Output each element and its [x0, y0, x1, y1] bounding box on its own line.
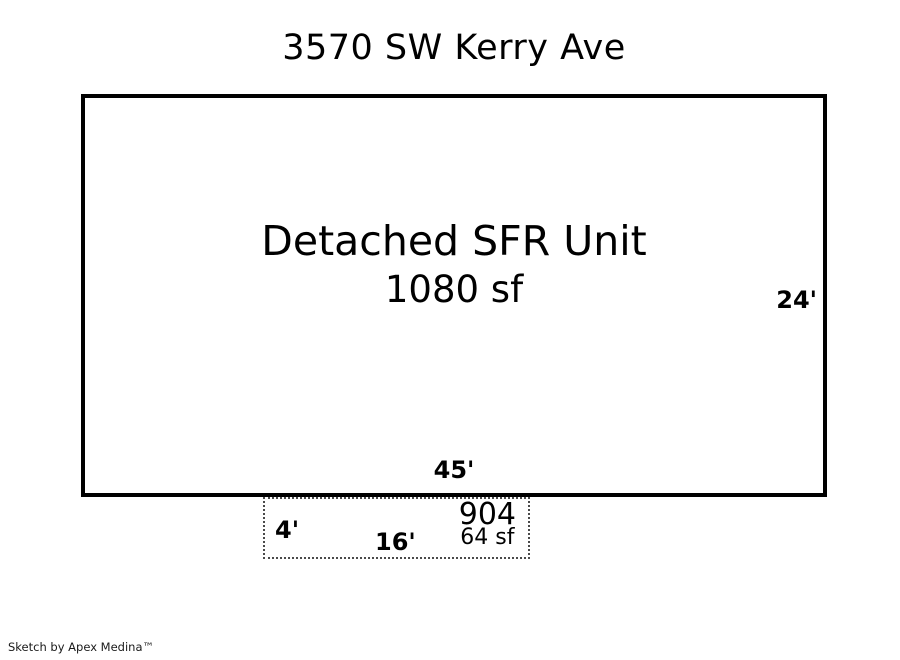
shed-outline: 4' 16' 904 64 sf — [263, 497, 530, 559]
sketch-credit: Sketch by Apex Medina™ — [8, 640, 154, 654]
main-unit-label: Detached SFR Unit 1080 sf — [85, 216, 823, 314]
main-unit-dimension-bottom: 45' — [85, 456, 823, 484]
sketch-title: 3570 SW Kerry Ave — [81, 28, 827, 68]
main-unit-outline: Detached SFR Unit 1080 sf 24' 45' — [81, 94, 827, 497]
shed-label: 904 64 sf — [459, 502, 516, 547]
property-sketch: 3570 SW Kerry Ave Detached SFR Unit 1080… — [0, 0, 900, 660]
shed-dimension-left: 4' — [275, 516, 299, 544]
main-unit-dimension-right: 24' — [776, 286, 817, 314]
main-unit-area: 1080 sf — [85, 267, 823, 313]
shed-area: 64 sf — [459, 528, 516, 547]
shed-dimension-bottom: 16' — [375, 528, 416, 556]
main-unit-name: Detached SFR Unit — [85, 216, 823, 267]
